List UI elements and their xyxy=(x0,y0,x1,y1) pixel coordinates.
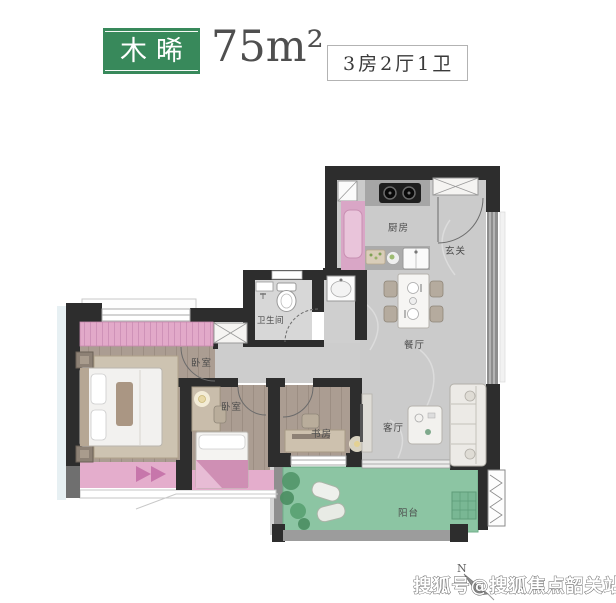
study-balcony-window xyxy=(291,456,346,465)
floorplan-svg: 厨房 玄关 xyxy=(0,0,616,603)
tv-console-icon xyxy=(360,394,372,452)
second-bedroom-label: 卧室 xyxy=(221,401,242,413)
left-sill xyxy=(57,306,66,500)
dining-label: 餐厅 xyxy=(404,339,425,351)
balcony-label: 阳台 xyxy=(398,507,419,519)
balcony-floor xyxy=(283,467,478,532)
study-bottom-stub-2 xyxy=(346,453,362,467)
sofa-pillow-icon xyxy=(465,449,475,459)
balcony-mat-icon xyxy=(452,492,476,519)
left-wall-gray xyxy=(66,466,80,498)
bathroom-bottom-wall xyxy=(243,340,324,347)
balcony-bottom-wall xyxy=(283,530,453,541)
bathroom-label: 卫生间 xyxy=(257,315,284,326)
plate-icon xyxy=(387,252,400,265)
living-room-label: 客厅 xyxy=(383,422,404,434)
right-wall-window xyxy=(487,212,498,384)
washbasin-icon xyxy=(327,276,355,301)
right-wall-bottom xyxy=(486,384,500,480)
sofa-pillow-icon xyxy=(465,391,475,401)
balcony-sliding-door xyxy=(362,460,450,468)
left-wall xyxy=(66,308,80,466)
tv-icon xyxy=(360,404,363,442)
cutting-board-icon xyxy=(366,250,385,264)
dining-left-wall xyxy=(355,268,367,340)
bed-icon xyxy=(80,368,162,446)
bathroom-right-wall xyxy=(312,270,324,312)
hall-bottom-wall-2 xyxy=(266,378,285,387)
study-label: 书房 xyxy=(311,428,332,440)
closet-icon xyxy=(214,323,247,343)
right-wall-top xyxy=(486,166,500,212)
kitchen-pink-counter xyxy=(341,201,365,270)
master-window xyxy=(102,309,190,321)
kitchen-left-wall xyxy=(325,180,337,272)
wardrobe-icon xyxy=(80,322,213,346)
dining-table-icon xyxy=(398,274,429,328)
watermark-text: 搜狐号@搜狐焦点韶关站 xyxy=(414,575,616,597)
hall-bottom-wall-1 xyxy=(175,378,238,387)
lamp-icon-core xyxy=(354,441,360,447)
master-bedroom-label: 卧室 xyxy=(191,357,212,369)
master-top-wall-right xyxy=(190,308,255,322)
bathroom-window xyxy=(272,271,302,279)
kitchen-label: 厨房 xyxy=(388,222,409,234)
hallway-floor xyxy=(213,343,360,383)
coffee-table-icon xyxy=(408,406,442,444)
stove-icon xyxy=(379,183,421,203)
master-bed2-wall xyxy=(180,378,192,470)
shoe-cabinet-icon xyxy=(433,178,478,195)
study-chair-icon xyxy=(302,414,319,428)
north-label: N xyxy=(457,562,467,575)
balcony-wall-cap-right xyxy=(450,524,468,542)
master-door-stub xyxy=(213,343,218,349)
study-bottom-stub xyxy=(278,453,291,467)
ac-platform-icon xyxy=(488,470,505,526)
single-bed-icon xyxy=(196,432,248,488)
sofa-icon xyxy=(450,384,486,466)
floorplan-page: 木晞 75m² 3房2厅1卫 xyxy=(0,0,616,603)
right-sill xyxy=(500,212,505,382)
balcony-area xyxy=(270,464,488,542)
sink-icon xyxy=(403,248,429,269)
foyer-label: 玄关 xyxy=(445,245,466,257)
toilet-icon xyxy=(277,283,296,312)
